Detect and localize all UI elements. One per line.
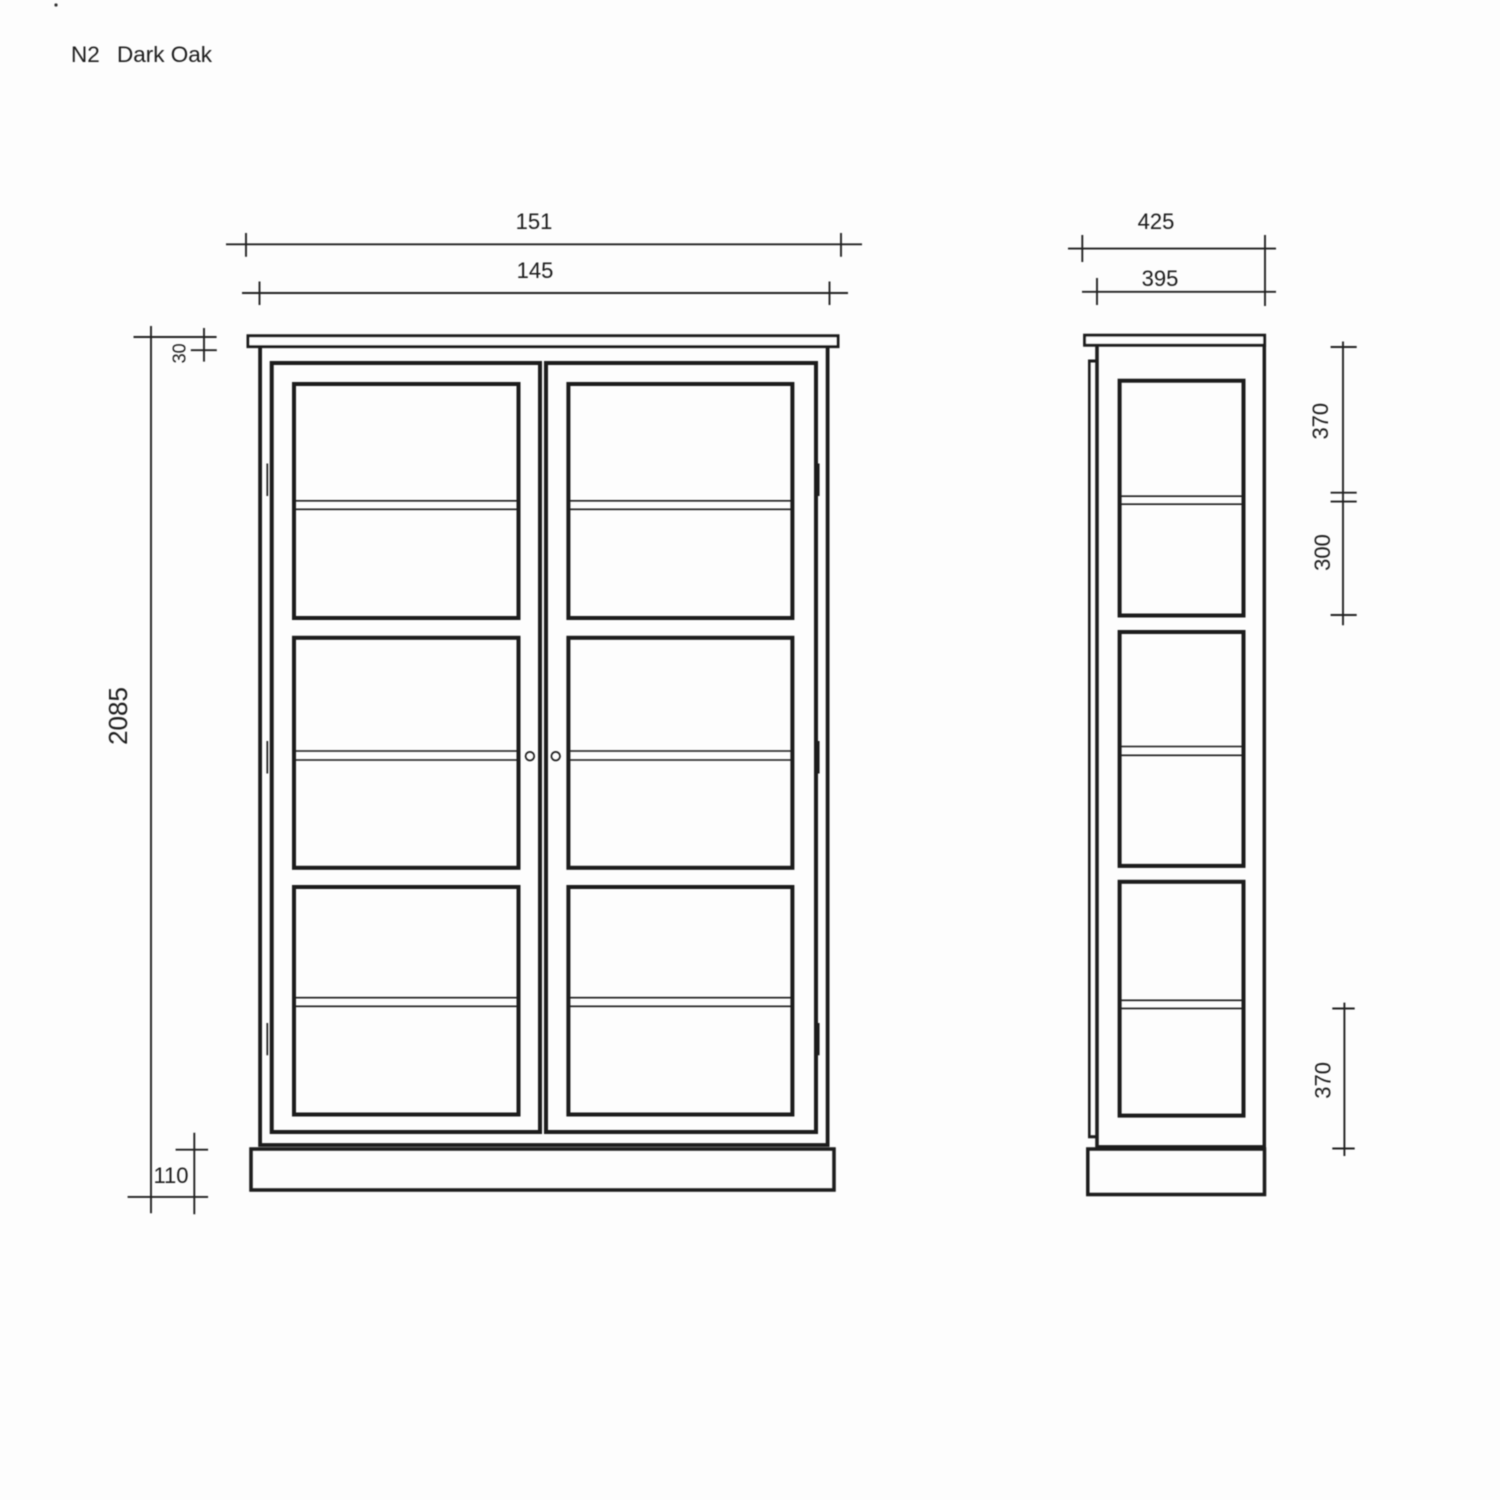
svg-text:300: 300: [1310, 534, 1335, 571]
svg-text:N2: N2: [71, 42, 100, 67]
svg-text:145: 145: [517, 258, 554, 283]
svg-text:395: 395: [1142, 266, 1179, 291]
svg-text:151: 151: [516, 209, 553, 234]
svg-text:370: 370: [1311, 1062, 1336, 1099]
svg-text:Dark Oak: Dark Oak: [117, 42, 213, 67]
svg-text:2085: 2085: [103, 687, 133, 745]
svg-text:425: 425: [1138, 209, 1175, 234]
svg-text:370: 370: [1308, 403, 1333, 440]
svg-text:110: 110: [153, 1163, 188, 1188]
svg-text:30: 30: [169, 343, 189, 363]
